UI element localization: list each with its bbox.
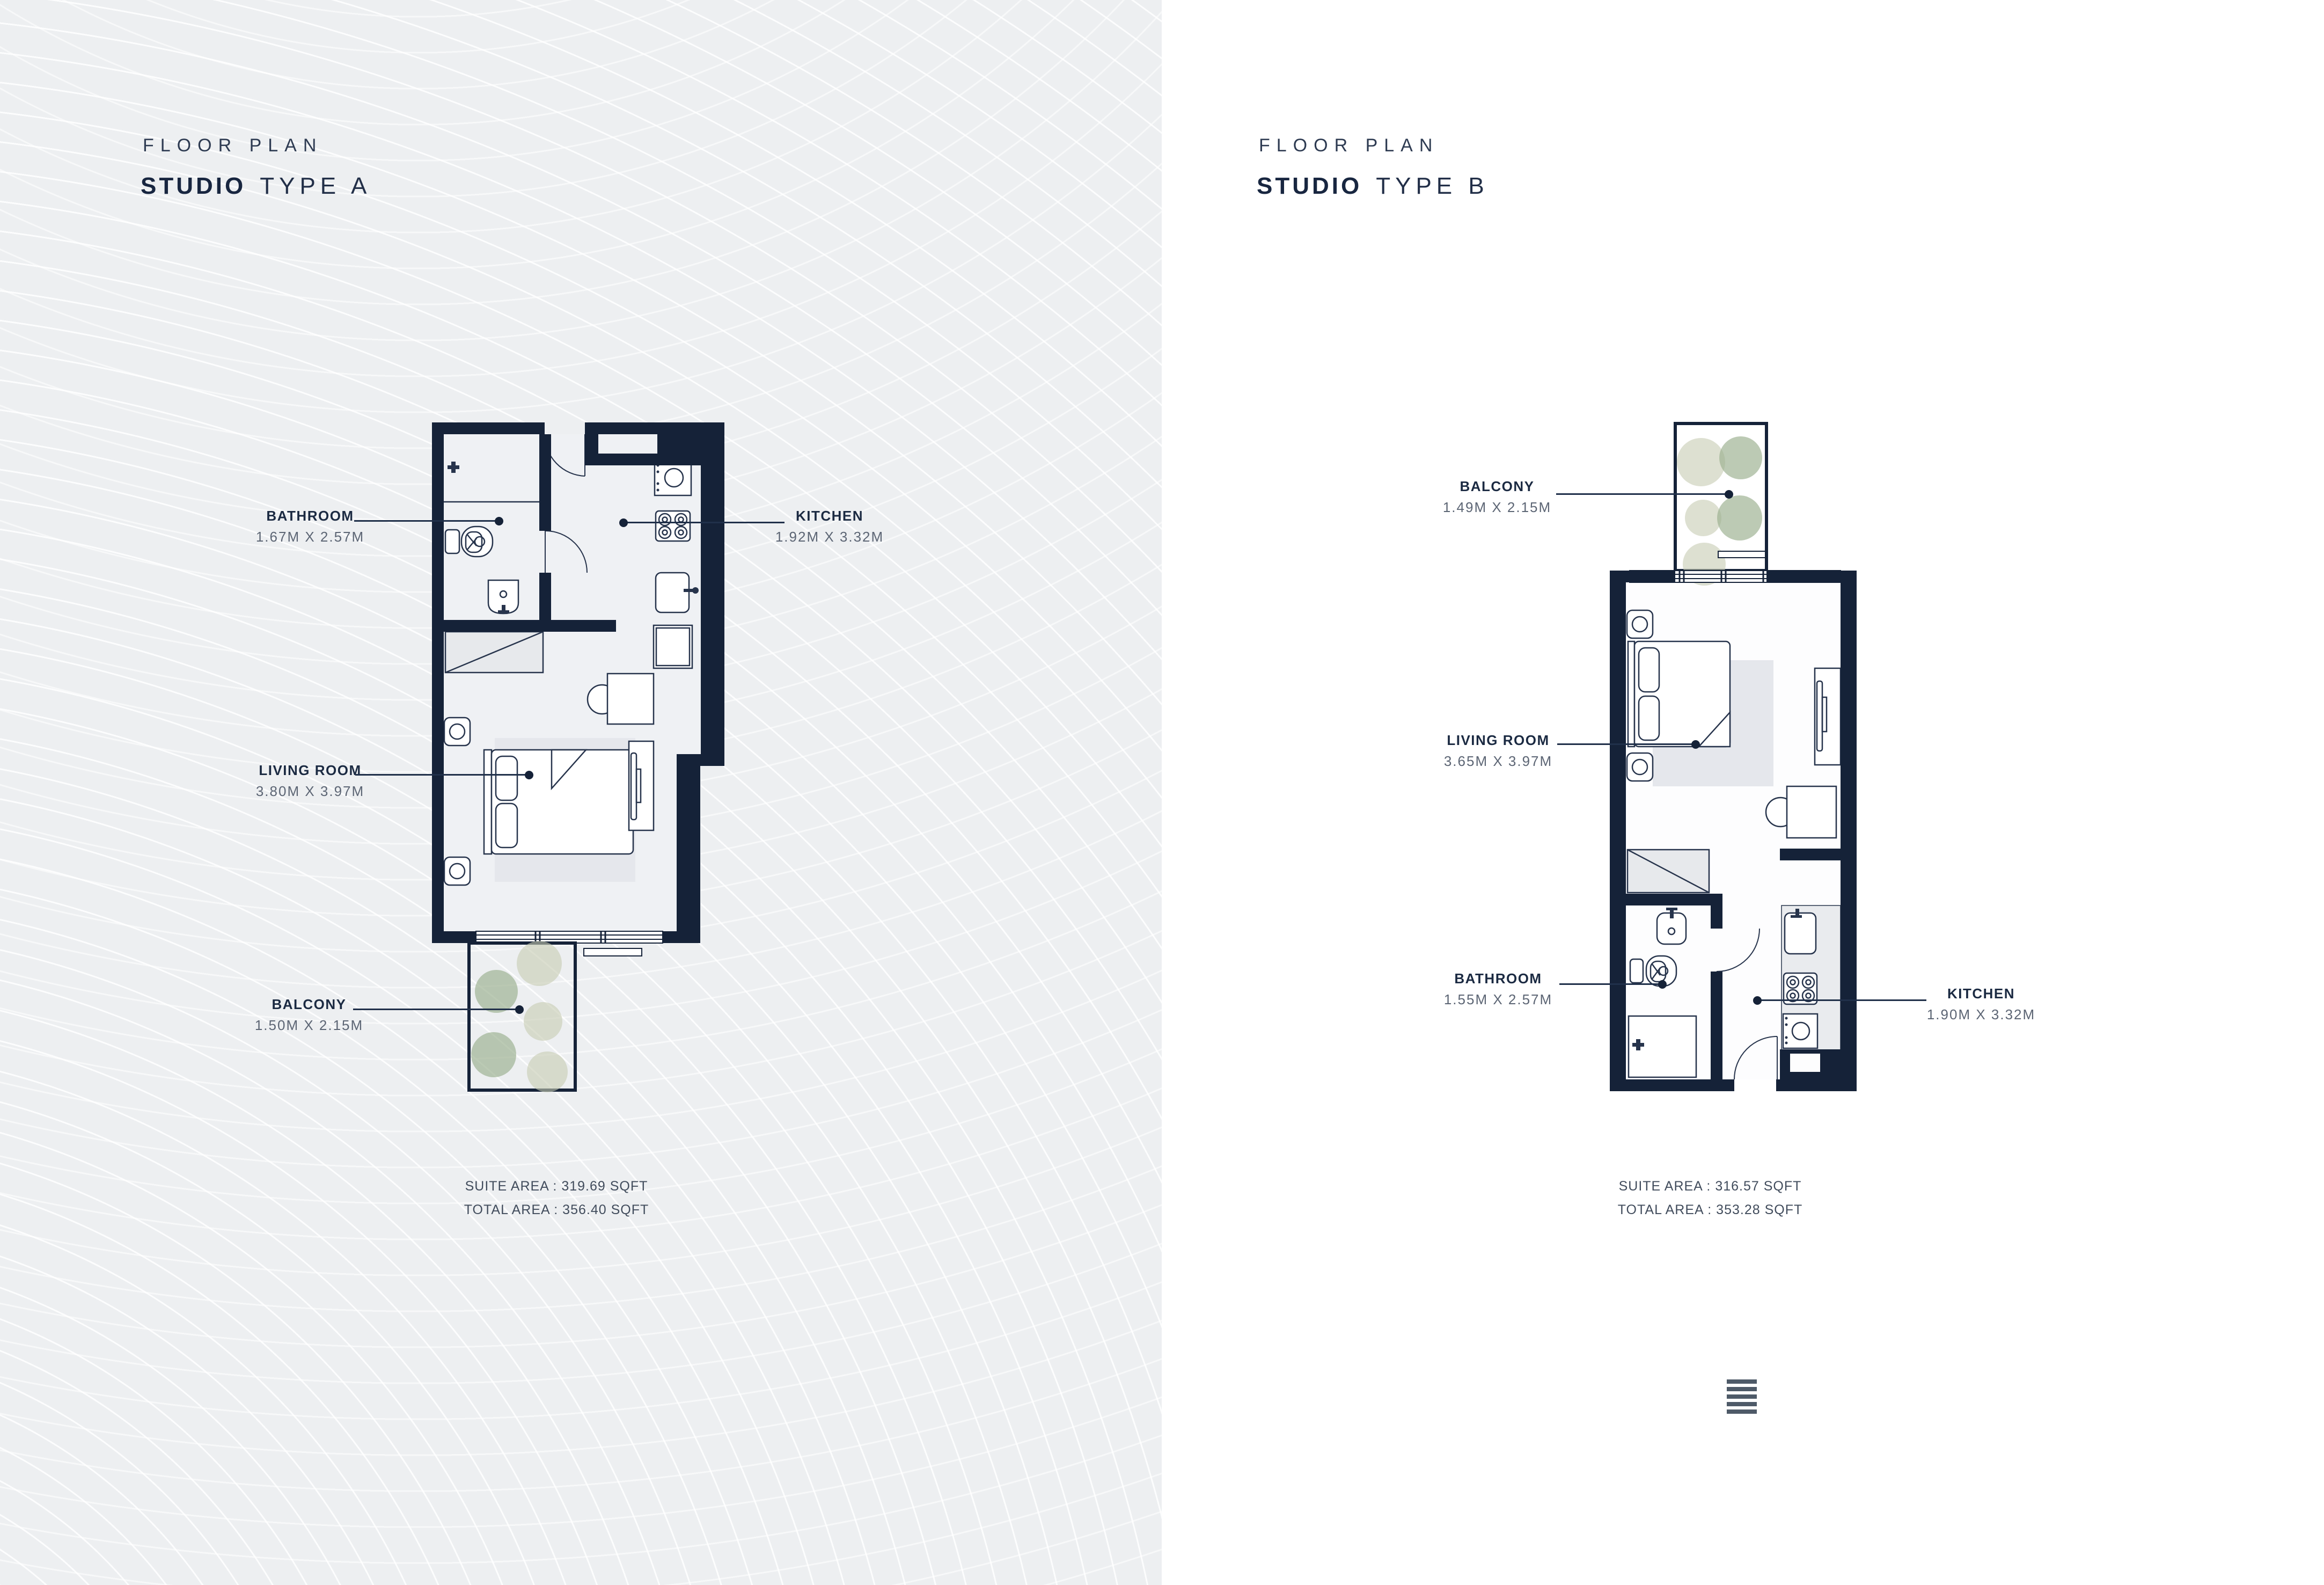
plan-b-areas: SUITE AREA : 316.57 SQFT TOTAL AREA : 35… [1597, 1174, 1823, 1222]
wardrobe [445, 632, 543, 673]
plant [1677, 438, 1725, 486]
leader-dot [1691, 740, 1700, 749]
leader-line [1556, 493, 1729, 495]
room-name: KITCHEN [1911, 985, 2051, 1002]
leader-dot [515, 1005, 524, 1014]
plant [471, 1032, 516, 1077]
bar [1727, 1379, 1757, 1384]
room-name: LIVING ROOM [1428, 732, 1568, 749]
leader-dot [495, 517, 503, 525]
room-name: BALCONY [1427, 478, 1567, 495]
bar [1727, 1387, 1757, 1391]
total-area: TOTAL AREA : 353.28 SQFT [1597, 1198, 1823, 1222]
plan-a-areas: SUITE AREA : 319.69 SQFT TOTAL AREA : 35… [444, 1174, 669, 1222]
fridge [654, 625, 692, 668]
toilet [1630, 956, 1676, 986]
balcony [1675, 423, 1766, 586]
plan-a-title-bold: STUDIO [141, 173, 246, 199]
brochure-page: FLOOR PLAN STUDIOTYPE A FLOOR PLAN STUDI… [0, 0, 2324, 1585]
plan-b-title: STUDIOTYPE B [1257, 173, 1489, 200]
stacked-bars-icon [1727, 1379, 1757, 1417]
room-dims: 1.92M X 3.32M [760, 529, 899, 545]
kitchen-sink [1785, 909, 1816, 954]
room-dims: 1.55M X 2.57M [1428, 991, 1568, 1008]
plan-a-eyebrow: FLOOR PLAN [143, 135, 322, 156]
tv-unit [1815, 668, 1841, 765]
room-dims: 1.90M X 3.32M [1911, 1006, 2051, 1023]
label-bathroom-a: BATHROOM 1.67M X 2.57M [240, 508, 380, 545]
plant [517, 941, 562, 986]
bed [484, 750, 633, 854]
plan-a-title-light: TYPE A [260, 173, 371, 199]
window-ledge [584, 948, 642, 956]
washing-machine [1783, 1014, 1817, 1048]
window-ledge [1718, 551, 1765, 558]
plan-b-eyebrow: FLOOR PLAN [1259, 135, 1439, 156]
label-living-room-a: LIVING ROOM 3.80M X 3.97M [240, 762, 380, 800]
leader-line [1557, 743, 1696, 745]
washbasin [1657, 908, 1686, 944]
wardrobe [1627, 850, 1709, 893]
plant [1717, 495, 1762, 540]
toilet [445, 527, 493, 557]
room-dims: 1.49M X 2.15M [1427, 499, 1567, 516]
floor-plan-b [1599, 416, 1910, 1108]
label-living-room-b: LIVING ROOM 3.65M X 3.97M [1428, 732, 1568, 770]
plan-a-title: STUDIOTYPE A [141, 173, 371, 200]
room-name: BALCONY [239, 996, 379, 1013]
room-dims: 1.50M X 2.15M [239, 1017, 379, 1034]
leader-dot [1753, 996, 1762, 1005]
plant [475, 970, 518, 1013]
room-dims: 1.67M X 2.57M [240, 529, 380, 545]
leader-line [624, 522, 785, 523]
plant [524, 1002, 562, 1041]
leader-dot [525, 771, 533, 779]
leader-dot [619, 518, 628, 527]
leader-line [1559, 983, 1662, 985]
label-balcony-a: BALCONY 1.50M X 2.15M [239, 996, 379, 1034]
stove [656, 511, 690, 541]
window-band [476, 931, 663, 943]
room-dims: 3.80M X 3.97M [240, 783, 380, 800]
suite-area: SUITE AREA : 316.57 SQFT [1597, 1174, 1823, 1198]
label-kitchen-b: KITCHEN 1.90M X 3.32M [1911, 985, 2051, 1023]
tv-unit [629, 741, 654, 830]
leader-dot [1725, 490, 1733, 499]
plant [1719, 436, 1762, 479]
leader-line [1757, 999, 1926, 1001]
room-dims: 3.65M X 3.97M [1428, 753, 1568, 770]
leader-line [353, 1009, 519, 1010]
washbasin [488, 580, 518, 613]
label-kitchen-a: KITCHEN 1.92M X 3.32M [760, 508, 899, 545]
shower [1629, 1016, 1696, 1077]
bar [1727, 1394, 1757, 1399]
total-area: TOTAL AREA : 356.40 SQFT [444, 1198, 669, 1222]
plan-b-title-bold: STUDIO [1257, 173, 1362, 199]
plant [1685, 500, 1721, 536]
leader-line [354, 520, 499, 522]
room-name: LIVING ROOM [240, 762, 380, 779]
leader-line [355, 774, 529, 776]
suite-area: SUITE AREA : 319.69 SQFT [444, 1174, 669, 1198]
label-bathroom-b: BATHROOM 1.55M X 2.57M [1428, 970, 1568, 1008]
room-name: BATHROOM [240, 508, 380, 524]
bar [1727, 1402, 1757, 1406]
label-balcony-b: BALCONY 1.49M X 2.15M [1427, 478, 1567, 516]
room-name: BATHROOM [1428, 970, 1568, 987]
leader-dot [1658, 980, 1667, 989]
plant [527, 1051, 568, 1092]
balcony [469, 941, 642, 1092]
bar [1727, 1409, 1757, 1414]
bed [1628, 641, 1730, 747]
plan-b-title-light: TYPE B [1376, 173, 1489, 199]
